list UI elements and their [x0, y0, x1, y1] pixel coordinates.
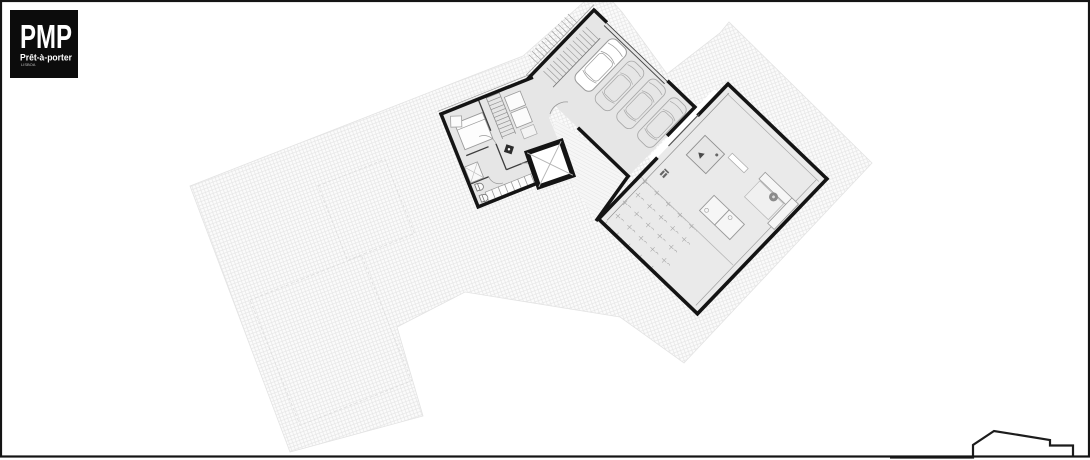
svg-text:PMP: PMP	[20, 18, 72, 55]
svg-text:LISBOA: LISBOA	[21, 62, 36, 67]
